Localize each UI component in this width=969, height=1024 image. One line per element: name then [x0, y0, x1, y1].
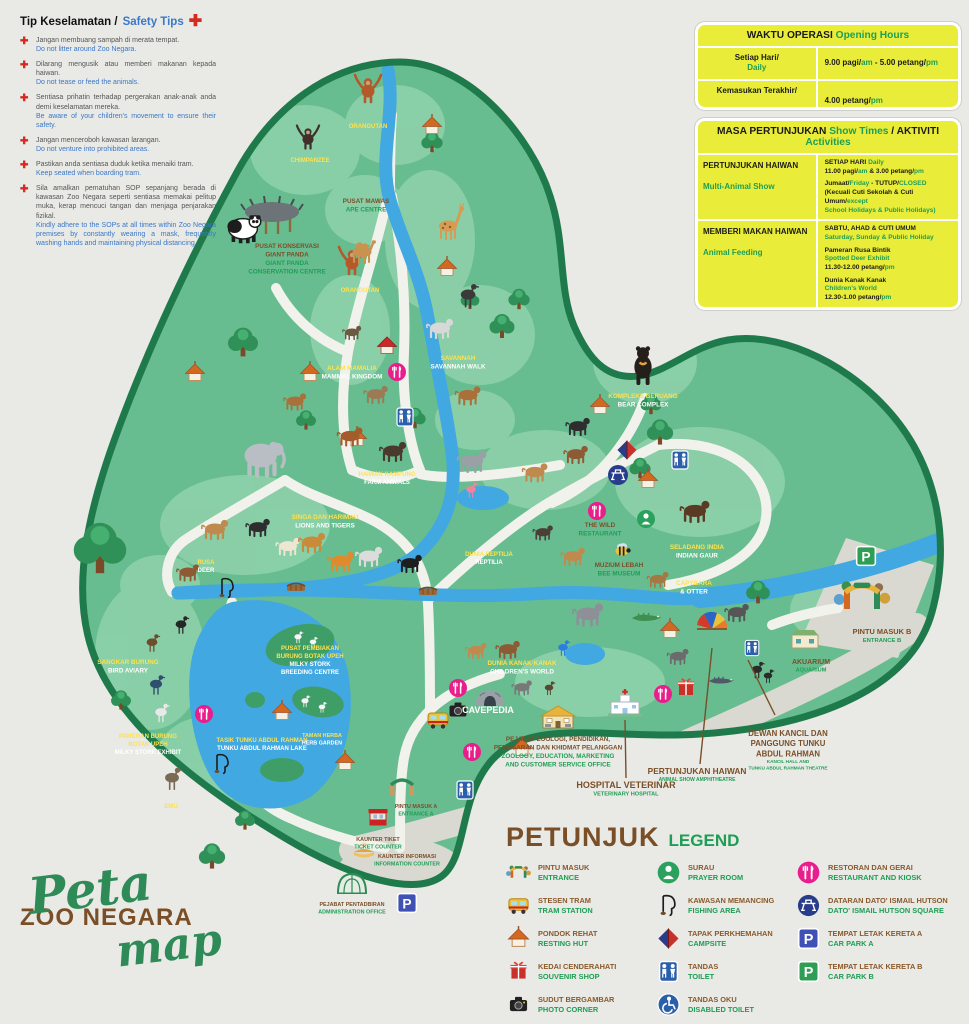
text-segment: AKTIVITI [897, 126, 939, 137]
safety-tips-panel: Tip Keselamatan / Safety Tips ✚ ✚Jangan … [20, 14, 216, 248]
car-park-b-marker-icon: P [857, 547, 876, 566]
emu-icon [165, 768, 182, 790]
safety-tip-english: Keep seated when boarding tram. [36, 169, 194, 178]
safety-tip-malay: Dilarang mengusik atau memberi makanan k… [36, 60, 216, 78]
text-segment: Opening Hours [836, 30, 910, 41]
legend-item-tram: STESEN TRAMTRAM STATION [506, 893, 656, 918]
legend-label-english: RESTAURANT AND KIOSK [828, 873, 922, 883]
text-segment: Jumaat/ [825, 180, 850, 187]
safety-tip-english: Do not venture into prohibited areas. [36, 145, 161, 154]
legend-column: RESTORAN DAN GERAIRESTAURANT AND KIOSKDA… [796, 860, 964, 1017]
map-label: CAPYBARA& OTTER [676, 580, 712, 595]
opening-hours-panel: WAKTU OPERASI Opening Hours Setiap Hari/… [695, 22, 961, 110]
legend-label-malay: TAPAK PERKHEMAHAN [688, 929, 773, 939]
legend-item-parkingA: PTEMPAT LETAK KERETA ACAR PARK A [796, 926, 964, 951]
sun-bear-icon [634, 346, 651, 383]
hours-value: 4.00 petang/pm [825, 96, 951, 106]
legend-item-hut: PONDOK REHATRESTING HUT [506, 926, 656, 951]
legend-label-english: FISHING AREA [688, 906, 774, 916]
restaurant-marker-icon [388, 363, 406, 381]
prayer-room-marker-icon [637, 510, 655, 528]
map-label: KOMPLEKS BERUANGBEAR COMPLEX [608, 393, 677, 408]
bridge-icon [287, 584, 305, 592]
legend-label-english: DISABLED TOILET [688, 1005, 754, 1015]
map-label: PEJABAT ZOOLOGI, PENDIDIKAN,PEMASARAN DA… [494, 736, 623, 768]
text-segment: Animal Feeding [703, 248, 811, 258]
show-detail-line: Pameran Rusa Bintik [825, 247, 951, 256]
legend-label-english: PRAYER ROOM [688, 873, 743, 883]
legend-label-english: CAR PARK A [828, 939, 922, 949]
legend-label-english: TRAM STATION [538, 906, 593, 916]
map-label: DUNIA KANAK-KANAKCHILDREN'S WORLD [487, 660, 556, 675]
bridge-icon [419, 588, 437, 596]
legend-label-english: CAMPSITE [688, 939, 773, 949]
text-segment: Last Admission [701, 107, 813, 110]
legend-item-entrance: PINTU MASUKENTRANCE [506, 860, 656, 885]
text-segment: pm [926, 58, 938, 67]
text-segment: Activities [805, 137, 850, 148]
show-detail-line: Saturday, Sunday & Public Holiday [825, 234, 951, 243]
map-label: KAUNTER INFORMASIINFORMATION COUNTER [374, 854, 440, 867]
map-label: EMU [164, 804, 177, 810]
show-detail-line: Spotted Deer Exhibit [825, 255, 951, 264]
legend-label-malay: TEMPAT LETAK KERETA B [828, 962, 922, 972]
legend-label-english: PHOTO CORNER [538, 1005, 614, 1015]
picnic-square-marker-icon [608, 465, 628, 485]
legend-item-text: SURAUPRAYER ROOM [688, 863, 743, 882]
safety-tip-text: Sentiasa prihatin terhadap pergerakan an… [36, 93, 216, 129]
legend-item-text: PINTU MASUKENTRANCE [538, 863, 589, 882]
safety-tip-text: Sila amalkan pematuhan SOP sepanjang ber… [36, 184, 216, 248]
map-label: PUSAT MAWASAPE CENTRE [343, 198, 389, 213]
show-detail-line: (Kecuali Cuti Sekolah & Cuti Umum/except [825, 189, 951, 206]
toilet-icon [656, 959, 681, 984]
legend-label-malay: KEDAI CENDERAHATI [538, 962, 616, 972]
legend-title-en: LEGEND [669, 831, 740, 851]
legend-item-text: RESTORAN DAN GERAIRESTAURANT AND KIOSK [828, 863, 922, 882]
text-segment: 11.00 pagi/ [825, 168, 858, 175]
toilet-marker-icon [745, 640, 759, 655]
map-label: KAUNTER TIKETTICKET COUNTER [354, 837, 402, 850]
legend-label-english: DATO' ISMAIL HUTSON SQUARE [828, 906, 948, 916]
hours-label-cell: Setiap Hari/Daily [698, 48, 818, 79]
show-detail-line: 11.30-12.00 petang/pm [825, 264, 951, 273]
legend-item-text: KAWASAN MEMANCINGFISHING AREA [688, 896, 774, 915]
text-segment: 9.00 pagi/ [825, 58, 861, 67]
legend-panel: PETUNJUK LEGEND PINTU MASUKENTRANCESTESE… [506, 822, 964, 1017]
toilet-marker-icon [397, 408, 413, 426]
show-detail-cell: SABTU, AHAD & CUTI UMUMSaturday, Sunday … [818, 221, 958, 310]
safety-title-en: Safety Tips [123, 16, 184, 28]
text-segment: - 5.00 petang/ [873, 58, 926, 67]
show-times-row: MEMBERI MAKAN HAIWANAnimal FeedingSABTU,… [698, 221, 958, 310]
restaurant-marker-icon [449, 679, 467, 697]
map-label: ORANGUTAN [341, 288, 380, 294]
text-segment: MASA PERTUNJUKAN [717, 126, 829, 137]
text-segment: pm [871, 96, 883, 105]
text-segment: Spotted Deer Exhibit [825, 255, 890, 262]
legend-item-text: DATARAN DATO' ISMAIL HUTSONDATO' ISMAIL … [828, 896, 948, 915]
zoo-negara-map-page: PP PUSAT KONSERVASIGIANT PANDAGIANT PAND… [0, 0, 969, 1024]
legend-label-english: CAR PARK B [828, 972, 922, 982]
show-detail-line: 11.00 pagi/am & 3.00 petang/pm [825, 168, 951, 177]
text-segment: - TUTUP/ [869, 180, 899, 187]
square-icon [796, 893, 821, 918]
safety-tip-item: ✚Sila amalkan pematuhan SOP sepanjang be… [20, 184, 216, 248]
show-detail-line: Children's World [825, 285, 951, 294]
text-segment: am [861, 58, 873, 67]
legend-item-text: KEDAI CENDERAHATISOUVENIR SHOP [538, 962, 616, 981]
plus-bullet-icon: ✚ [20, 93, 30, 129]
hours-label-cell: Kemasukan Terakhir/Last Admission [698, 81, 818, 110]
show-label-cell: MEMBERI MAKAN HAIWANAnimal Feeding [698, 221, 818, 310]
ticket-counter-booth-icon [369, 809, 388, 825]
plus-bullet-icon: ✚ [20, 160, 30, 178]
restaurant-marker-icon [195, 705, 213, 723]
legend-label-malay: KAWASAN MEMANCING [688, 896, 774, 906]
svg-text:P: P [861, 549, 870, 564]
text-segment: WAKTU OPERASI [747, 30, 836, 41]
legend-item-text: TEMPAT LETAK KERETA BCAR PARK B [828, 962, 922, 981]
text-segment: PERTUNJUKAN HAIWAN [703, 161, 811, 171]
safety-tip-english: Do not litter around Zoo Negara. [36, 45, 179, 54]
legend-item-camera: SUDUT BERGAMBARPHOTO CORNER [506, 992, 656, 1017]
show-detail-line: Pameran Rusa Jawa & Walabi [825, 307, 951, 310]
show-detail-line: SETIAP HARI Daily [825, 159, 951, 168]
safety-tip-malay: Pastikan anda sentiasa duduk ketika mena… [36, 160, 194, 169]
legend-label-malay: PINTU MASUK [538, 863, 589, 873]
text-segment: & 3.00 petang/ [867, 168, 914, 175]
text-segment: Kemasukan Terakhir/ [701, 86, 813, 96]
toilet-marker-icon [457, 781, 473, 799]
hours-value-cell: 4.00 petang/pm [818, 81, 958, 110]
aquarium-building-icon [792, 630, 818, 648]
text-segment: Daily [868, 159, 884, 166]
campsite-icon [656, 926, 681, 951]
text-segment: Multi-Animal Show [703, 182, 811, 192]
legend-label-malay: STESEN TRAM [538, 896, 593, 906]
legend-item-square: DATARAN DATO' ISMAIL HUTSONDATO' ISMAIL … [796, 893, 964, 918]
safety-tip-text: Pastikan anda sentiasa duduk ketika mena… [36, 160, 194, 178]
safety-tip-item: ✚Sentiasa prihatin terhadap pergerakan a… [20, 93, 216, 129]
tram-icon [506, 893, 531, 918]
show-detail-line: 12.30-1.00 petang/pm [825, 294, 951, 303]
map-label: PINTU MASUK AENTRANCE A [395, 804, 438, 817]
show-detail-line: SABTU, AHAD & CUTI UMUM [825, 225, 951, 234]
legend-column: SURAUPRAYER ROOMKAWASAN MEMANCINGFISHING… [656, 860, 796, 1017]
legend-item-text: PONDOK REHATRESTING HUT [538, 929, 597, 948]
map-label: DEWAN KANCIL DANPANGGUNG TUNKUABDUL RAHM… [748, 729, 828, 770]
map-label: CHIMPANZEE [290, 158, 329, 164]
map-label: PERTUNJUKAN HAIWANANIMAL SHOW AMPHITHEAT… [648, 766, 747, 783]
text-segment: (Kecuali Cuti Sekolah & Cuti Umum/ [825, 189, 914, 205]
text-segment: Children's World [825, 285, 877, 292]
show-detail-cell: SETIAP HARI Daily11.00 pagi/am & 3.00 pe… [818, 155, 958, 219]
opening-hours-row: Setiap Hari/Daily9.00 pagi/am - 5.00 pet… [698, 48, 958, 81]
text-segment: Show Times [829, 126, 888, 137]
legend-title-my: PETUNJUK [506, 822, 660, 853]
hours-value: 9.00 pagi/am - 5.00 petang/pm [825, 58, 951, 68]
safety-tip-malay: Jangan membuang sampah di merata tempat. [36, 36, 179, 45]
show-times-rows: PERTUNJUKAN HAIWANMulti-Animal ShowSETIA… [698, 155, 958, 310]
legend-item-campsite: TAPAK PERKHEMAHANCAMPSITE [656, 926, 796, 951]
legend-label-malay: TANDAS [688, 962, 718, 972]
surau-icon [656, 860, 681, 885]
safety-tip-english: Do not tease or feed the animals. [36, 78, 216, 87]
text-segment: Pameran Rusa Bintik [825, 247, 891, 254]
plus-bullet-icon: ✚ [20, 36, 30, 54]
legend-label-english: TOILET [688, 972, 718, 982]
map-label: TAMAN HERBAHERB GARDEN [302, 733, 342, 746]
legend-item-restaurant: RESTORAN DAN GERAIRESTAURANT AND KIOSK [796, 860, 964, 885]
legend-label-malay: SURAU [688, 863, 743, 873]
safety-tip-text: Dilarang mengusik atau memberi makanan k… [36, 60, 216, 87]
legend-item-surau: SURAUPRAYER ROOM [656, 860, 796, 885]
svg-text:P: P [804, 965, 814, 981]
gift-icon [506, 959, 531, 984]
opening-hours-title: WAKTU OPERASI Opening Hours [698, 25, 958, 48]
opening-hours-row: Kemasukan Terakhir/Last Admission4.00 pe… [698, 81, 958, 110]
text-segment: pm [885, 264, 895, 271]
safety-title-my: Tip Keselamatan / [20, 16, 118, 28]
map-label: CAVEPEDIA [462, 705, 514, 715]
disabled-icon [656, 992, 681, 1017]
safety-tips-list: ✚Jangan membuang sampah di merata tempat… [20, 36, 216, 248]
map-label: PEJABAT PENTADBIRANADMINISTRATION OFFICE [318, 902, 386, 915]
svg-text:P: P [804, 932, 814, 948]
legend-label-malay: TEMPAT LETAK KERETA A [828, 929, 922, 939]
safety-tip-english: Be aware of your children's movement to … [36, 112, 216, 130]
map-label: SELADANG INDIAINDIAN GAUR [670, 544, 725, 559]
legend-item-text: TEMPAT LETAK KERETA ACAR PARK A [828, 929, 922, 948]
legend-item-toilet: TANDASTOILET [656, 959, 796, 984]
text-segment: Pameran Rusa Jawa & Walabi [825, 307, 918, 310]
car-park-a-marker-icon: P [398, 894, 417, 913]
safety-tip-english: Kindly adhere to the SOPs at all times w… [36, 221, 216, 248]
legend-item-text: TAPAK PERKHEMAHANCAMPSITE [688, 929, 773, 948]
legend-item-disabled: TANDAS OKUDISABLED TOILET [656, 992, 796, 1017]
text-segment: pm [914, 168, 924, 175]
legend-label-malay: RESTORAN DAN GERAI [828, 863, 922, 873]
show-times-row: PERTUNJUKAN HAIWANMulti-Animal ShowSETIA… [698, 155, 958, 221]
safety-tip-item: ✚Pastikan anda sentiasa duduk ketika men… [20, 160, 216, 178]
map-label: MUZIUM LEBAHBEE MUSEUM [595, 562, 644, 577]
legend-item-text: SUDUT BERGAMBARPHOTO CORNER [538, 995, 614, 1014]
legend-item-text: TANDASTOILET [688, 962, 718, 981]
text-segment: Setiap Hari/ [701, 53, 813, 63]
legend-item-gift: KEDAI CENDERAHATISOUVENIR SHOP [506, 959, 656, 984]
legend-columns: PINTU MASUKENTRANCESTESEN TRAMTRAM STATI… [506, 860, 964, 1017]
safety-tips-title: Tip Keselamatan / Safety Tips ✚ [20, 14, 216, 30]
show-times-panel: MASA PERTUNJUKAN Show Times / AKTIVITI A… [695, 118, 961, 310]
text-segment: Daily [701, 63, 813, 73]
map-label: ALAM MAMALIAMAMMAL KINGDOM [322, 365, 383, 380]
svg-text:P: P [402, 896, 411, 911]
plus-bullet-icon: ✚ [20, 184, 30, 248]
opening-hours-rows: Setiap Hari/Daily9.00 pagi/am - 5.00 pet… [698, 48, 958, 110]
text-segment: Saturday, Sunday & Public Holiday [825, 234, 934, 241]
text-segment: except [847, 198, 868, 205]
text-segment: 11.30-12.00 petang/ [825, 264, 885, 271]
safety-tip-item: ✚Jangan membuang sampah di merata tempat… [20, 36, 216, 54]
restaurant-marker-icon [588, 502, 606, 520]
legend-label-english: ENTRANCE [538, 873, 589, 883]
map-label: ORANGUTAN [349, 124, 388, 130]
safety-tip-item: ✚Jangan menceroboh kawasan larangan.Do n… [20, 136, 216, 154]
legend-label-malay: PONDOK REHAT [538, 929, 597, 939]
safety-tip-text: Jangan membuang sampah di merata tempat.… [36, 36, 179, 54]
safety-tip-text: Jangan menceroboh kawasan larangan.Do no… [36, 136, 161, 154]
text-segment: MEMBERI MAKAN HAIWAN [703, 227, 811, 237]
red-cross-icon: ✚ [189, 14, 202, 30]
plus-bullet-icon: ✚ [20, 60, 30, 87]
legend-label-malay: SUDUT BERGAMBAR [538, 995, 614, 1005]
toilet-marker-icon [672, 451, 688, 469]
show-times-title: MASA PERTUNJUKAN Show Times / AKTIVITI A… [698, 121, 958, 155]
restaurant-marker-icon [463, 743, 481, 761]
text-segment: SABTU, AHAD & CUTI UMUM [825, 225, 916, 232]
safety-tip-item: ✚Dilarang mengusik atau memberi makanan … [20, 60, 216, 87]
safety-tip-malay: Jangan menceroboh kawasan larangan. [36, 136, 161, 145]
legend-label-english: RESTING HUT [538, 939, 597, 949]
fishing-icon [656, 893, 681, 918]
text-segment: 12.30-1.00 petang/ [825, 294, 882, 301]
legend-heading: PETUNJUK LEGEND [506, 822, 964, 853]
restaurant-icon [796, 860, 821, 885]
legend-item-parkingB: PTEMPAT LETAK KERETA BCAR PARK B [796, 959, 964, 984]
camera-icon [506, 992, 531, 1017]
legend-label-malay: DATARAN DATO' ISMAIL HUTSON [828, 896, 948, 906]
restaurant-marker-icon [654, 685, 672, 703]
label-leader-line [625, 720, 626, 778]
parkingB-icon: P [796, 959, 821, 984]
text-segment: School Holidays & Public Holidays) [825, 207, 936, 214]
show-detail-line: Jumaat/Friday - TUTUP/CLOSED [825, 180, 951, 189]
map-title: Peta ZOO NEGARA map [20, 858, 260, 966]
safety-tip-malay: Sentiasa prihatin terhadap pergerakan an… [36, 93, 216, 111]
safety-tip-malay: Sila amalkan pematuhan SOP sepanjang ber… [36, 184, 216, 220]
text-segment: / [888, 126, 896, 137]
legend-label-english: SOUVENIR SHOP [538, 972, 616, 982]
text-segment: pm [881, 294, 891, 301]
text-segment: 4.00 petang/ [825, 96, 871, 105]
parkingA-icon: P [796, 926, 821, 951]
map-label: SINGA DAN HARIMAULIONS AND TIGERS [292, 514, 359, 529]
show-detail-line: Dunia Kanak Kanak [825, 277, 951, 286]
legend-item-text: TANDAS OKUDISABLED TOILET [688, 995, 754, 1014]
hut-icon [506, 926, 531, 951]
entrance-icon [506, 860, 531, 885]
text-segment: SETIAP HARI [825, 159, 868, 166]
legend-item-text: STESEN TRAMTRAM STATION [538, 896, 593, 915]
hours-value-cell: 9.00 pagi/am - 5.00 petang/pm [818, 48, 958, 79]
map-label: THE WILDRESTAURANT [579, 522, 622, 537]
legend-item-fishing: KAWASAN MEMANCINGFISHING AREA [656, 893, 796, 918]
text-segment: Dunia Kanak Kanak [825, 277, 887, 284]
plus-bullet-icon: ✚ [20, 136, 30, 154]
legend-column: PINTU MASUKENTRANCESTESEN TRAMTRAM STATI… [506, 860, 656, 1017]
show-label-cell: PERTUNJUKAN HAIWANMulti-Animal Show [698, 155, 818, 219]
text-segment: Friday [850, 180, 870, 187]
show-detail-line: School Holidays & Public Holidays) [825, 207, 951, 216]
text-segment: CLOSED [899, 180, 926, 187]
legend-label-malay: TANDAS OKU [688, 995, 754, 1005]
